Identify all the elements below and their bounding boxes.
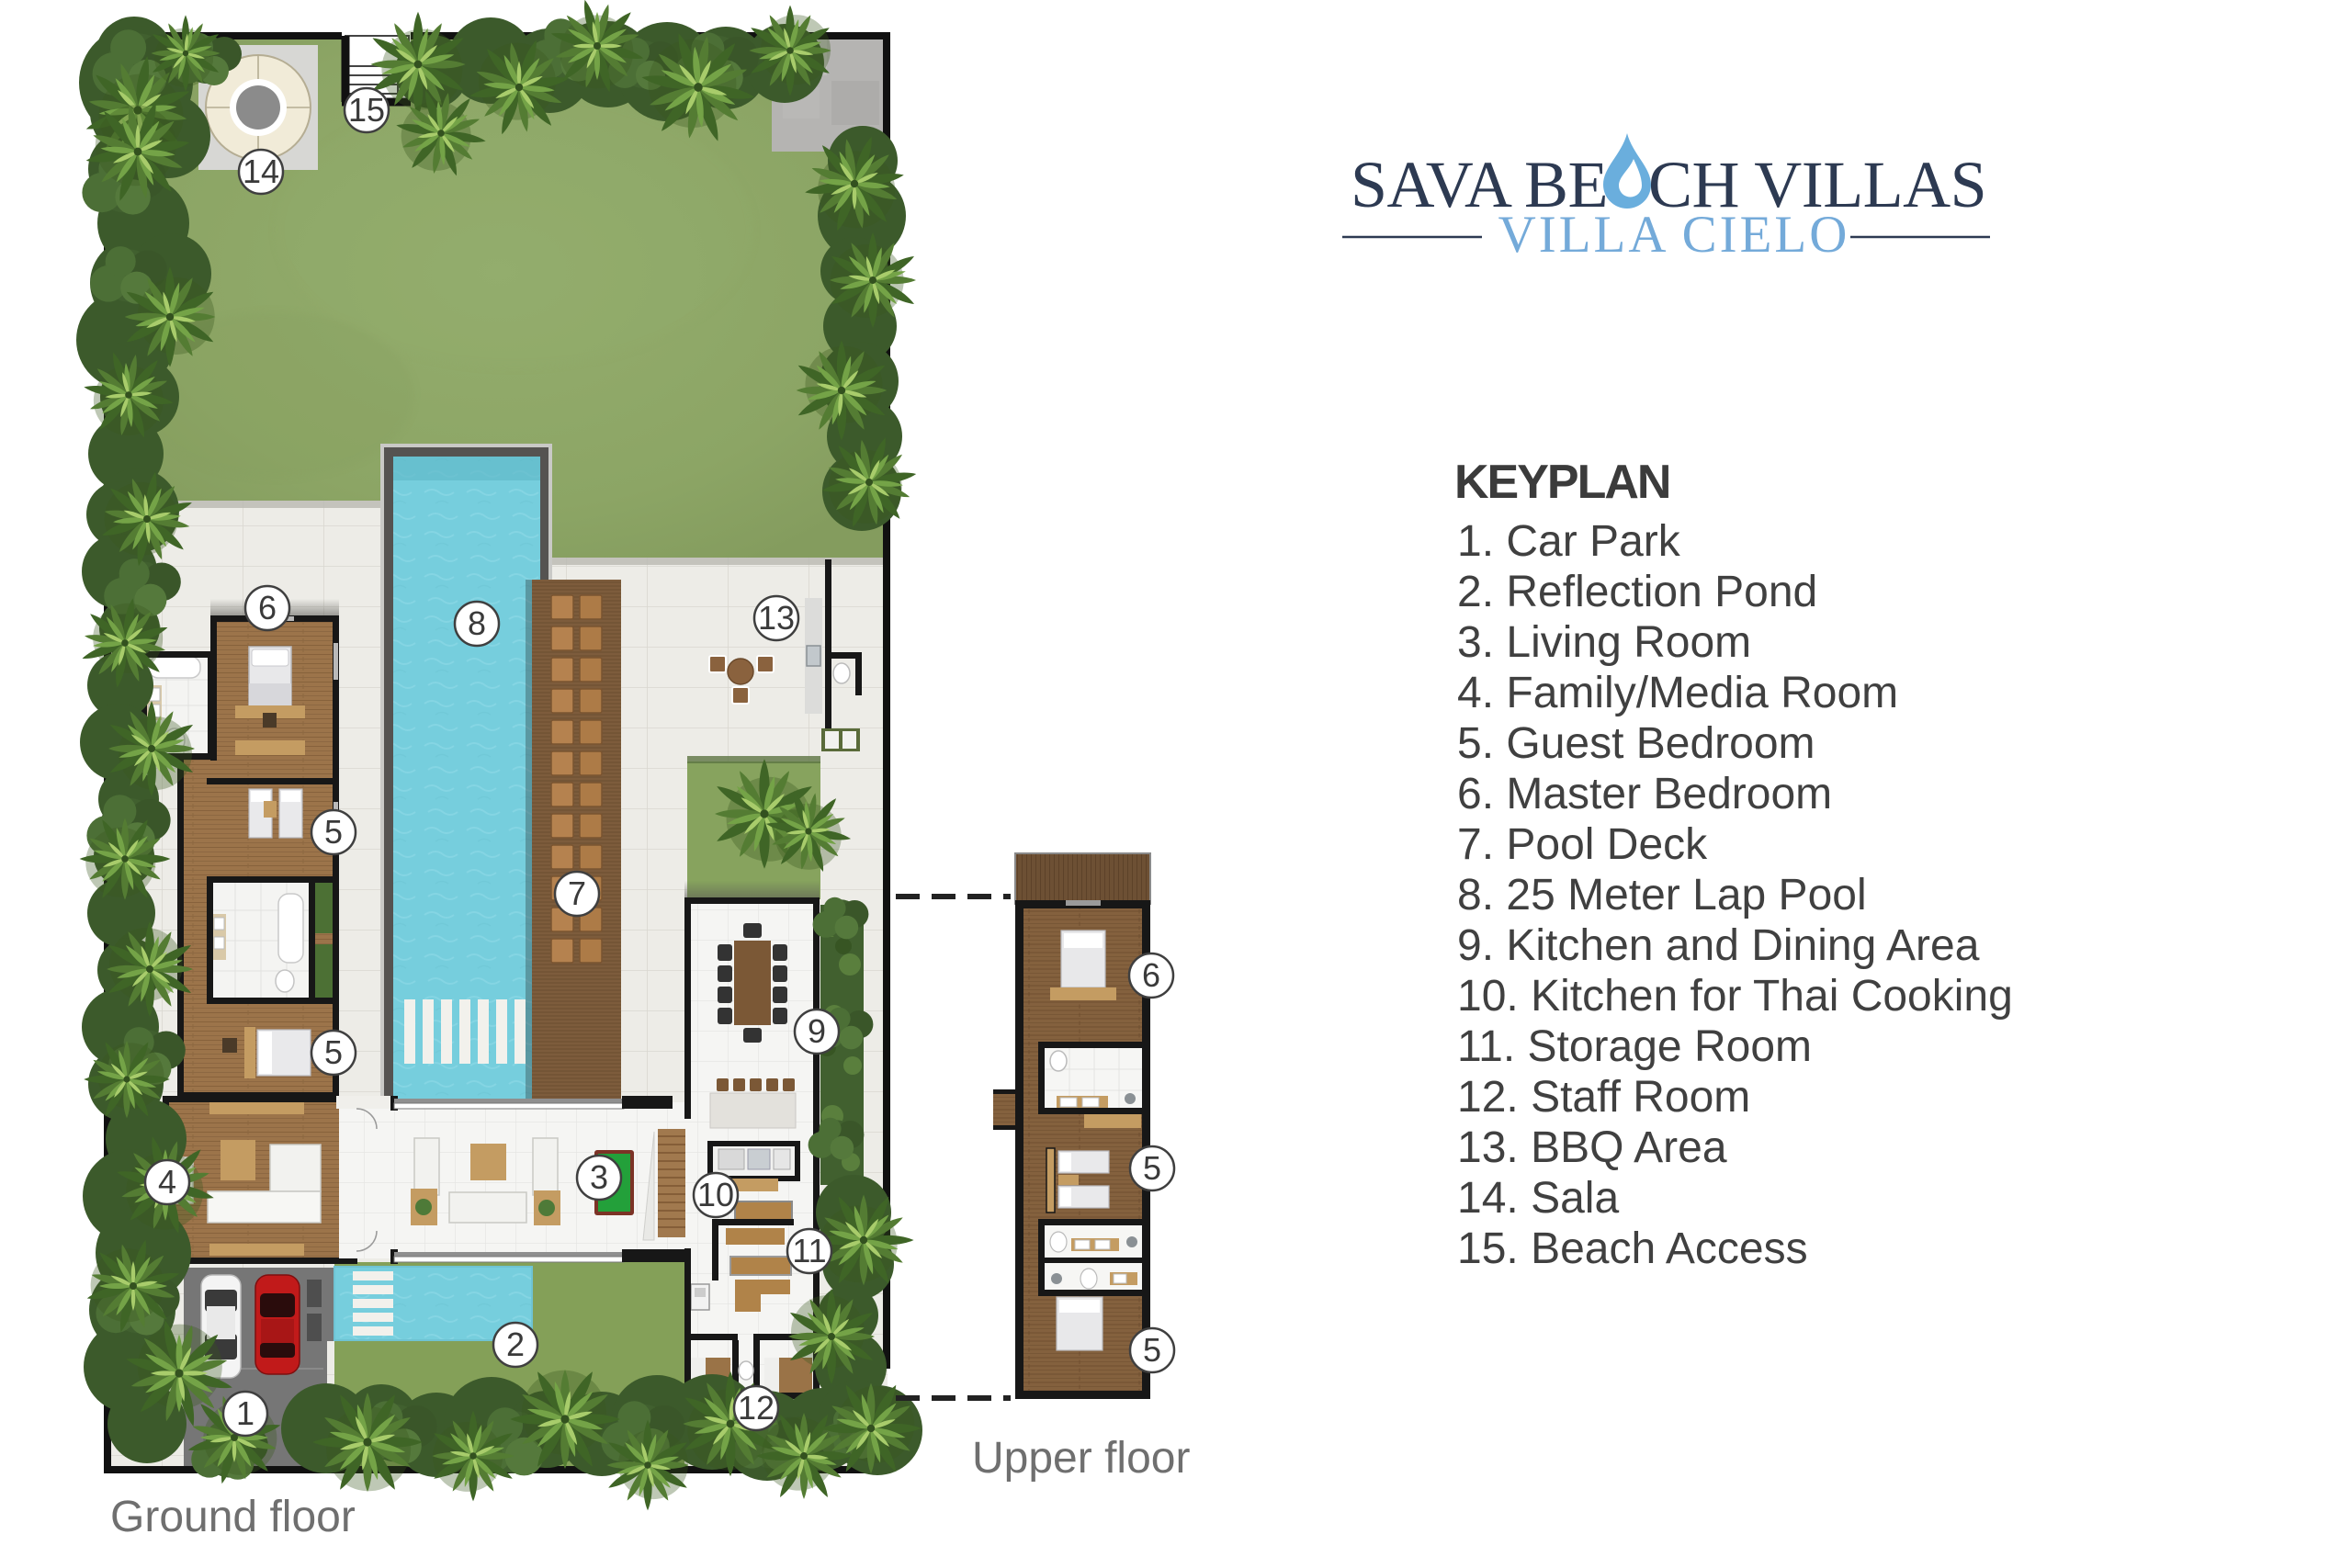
svg-text:11: 11 — [792, 1232, 826, 1269]
svg-text:15. Beach Access: 15. Beach Access — [1457, 1224, 1808, 1273]
svg-text:9. Kitchen and Dining Area: 9. Kitchen and Dining Area — [1457, 921, 1980, 970]
svg-text:5: 5 — [1143, 1149, 1161, 1187]
svg-text:13: 13 — [758, 599, 795, 637]
svg-text:5: 5 — [1143, 1331, 1161, 1369]
svg-text:13. BBQ Area: 13. BBQ Area — [1457, 1123, 1727, 1172]
svg-text:12. Staff Room: 12. Staff Room — [1457, 1073, 1750, 1122]
svg-text:Upper floor: Upper floor — [972, 1434, 1190, 1483]
svg-text:2. Reflection Pond: 2. Reflection Pond — [1457, 568, 1817, 616]
svg-text:11. Storage Room: 11. Storage Room — [1457, 1022, 1812, 1071]
svg-text:4. Family/Media Room: 4. Family/Media Room — [1457, 669, 1898, 717]
svg-text:14: 14 — [243, 152, 279, 190]
svg-text:15: 15 — [348, 91, 385, 129]
svg-text:1: 1 — [236, 1394, 254, 1432]
svg-text:6: 6 — [258, 589, 277, 626]
svg-text:3: 3 — [590, 1158, 608, 1196]
svg-text:3. Living Room: 3. Living Room — [1457, 618, 1751, 667]
svg-text:8: 8 — [468, 604, 486, 642]
svg-text:4: 4 — [158, 1163, 176, 1201]
svg-text:10. Kitchen for Thai Cooking: 10. Kitchen for Thai Cooking — [1457, 972, 2013, 1021]
svg-text:1. Car Park: 1. Car Park — [1457, 517, 1681, 566]
svg-text:14. Sala: 14. Sala — [1457, 1174, 1619, 1223]
svg-text:6: 6 — [1142, 956, 1160, 994]
svg-text:9: 9 — [808, 1012, 826, 1050]
svg-text:Ground floor: Ground floor — [110, 1493, 356, 1541]
svg-text:7. Pool Deck: 7. Pool Deck — [1457, 820, 1708, 869]
svg-text:5. Guest Bedroom: 5. Guest Bedroom — [1457, 719, 1815, 768]
svg-text:5: 5 — [324, 1033, 343, 1071]
svg-text:KEYPLAN: KEYPLAN — [1454, 456, 1669, 509]
svg-text:8. 25 Meter Lap Pool: 8. 25 Meter Lap Pool — [1457, 871, 1867, 919]
svg-text:2: 2 — [506, 1325, 525, 1363]
svg-text:7: 7 — [568, 874, 586, 912]
svg-text:12: 12 — [738, 1389, 775, 1427]
svg-text:5: 5 — [324, 813, 343, 851]
svg-text:6. Master Bedroom: 6. Master Bedroom — [1457, 770, 1832, 818]
svg-text:VILLA CIELO: VILLA CIELO — [1498, 206, 1850, 264]
svg-text:10: 10 — [697, 1176, 734, 1213]
